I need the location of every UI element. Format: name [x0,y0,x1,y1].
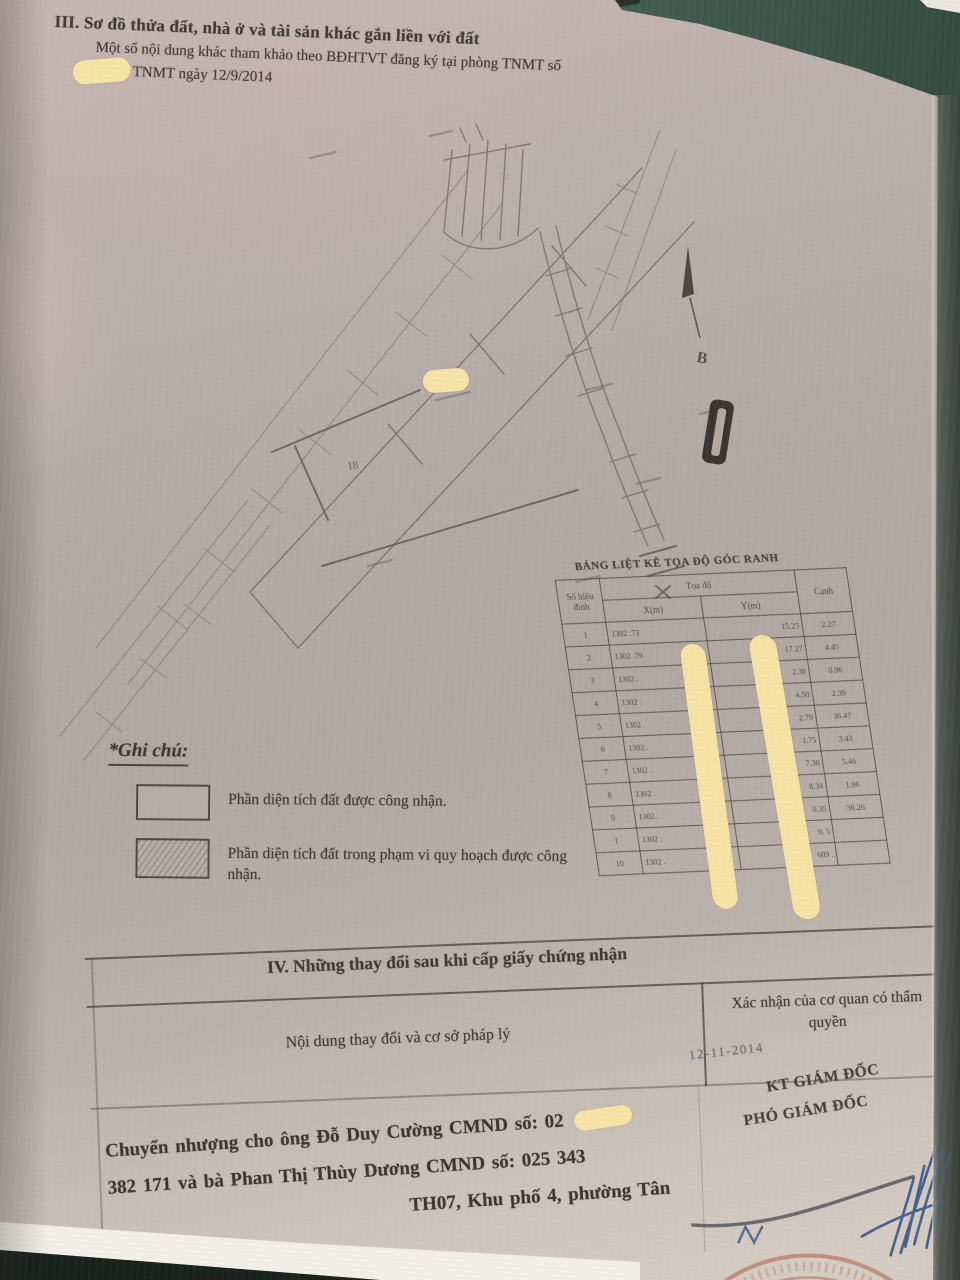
section4-block: IV. Những thay đổi sau khi cấp giấy chứn… [84,907,959,1280]
section4-col-confirm: Xác nhận của cơ quan có thẩm quyền [715,985,941,1038]
scale-bar-icon [701,399,735,466]
table-line [701,982,707,1086]
legend-item2-text: Phần diện tích đất trong phạm vi quy hoạ… [227,839,597,888]
col-point-number: Số hiệu đỉnh [555,578,606,624]
legend-item: Phần diện tích đất được công nhận. [136,784,608,824]
legend-block: *Ghi chú: Phần diện tích đất được công n… [107,740,608,888]
legend-item1-text: Phần diện tích đất được công nhận. [228,785,447,812]
redaction-mark [422,367,469,393]
col-edge: Cạnh [794,568,852,614]
received-date-stamp: 12-11-2014 [688,1039,764,1063]
paper-right-edge-shadow [932,95,960,1280]
section4-col-content: Nội dung thay đổi và cơ sở pháp lý [118,1019,678,1058]
legend-box-planning [135,838,209,879]
north-label: B [695,349,709,368]
legend-title: *Ghi chú: [108,740,188,767]
legend-item: Phần diện tích đất trong phạm vi quy hoạ… [135,838,607,888]
photo-of-land-certificate: III. Sơ đồ thửa đất, nhà ở và tài sản kh… [0,0,960,1280]
redaction-mark [573,1104,633,1133]
legend-box-recognized [136,784,210,821]
